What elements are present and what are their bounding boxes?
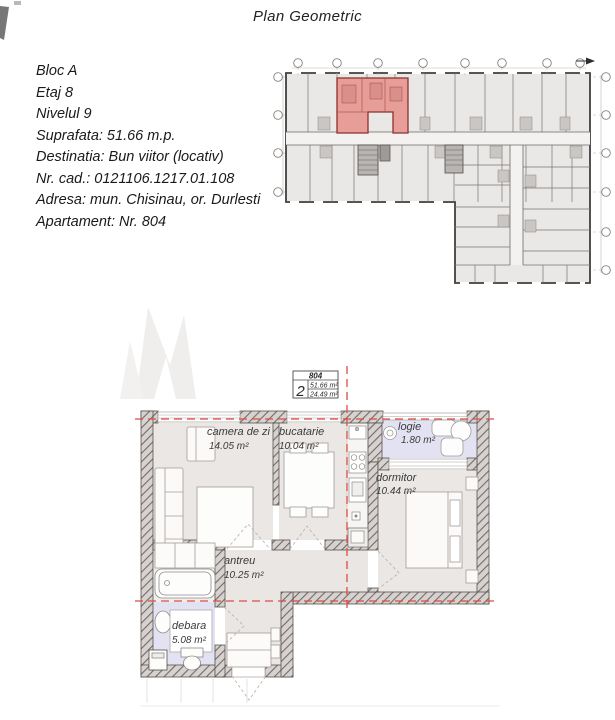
label-logie: logie — [398, 421, 421, 433]
label-dormitor: dormitor — [376, 472, 418, 484]
page-title: Plan Geometric — [0, 8, 615, 25]
area-bucatarie: 10.04 m² — [279, 441, 319, 452]
info-line-suprafata: Suprafata: 51.66 m.p. — [36, 126, 260, 148]
apartment-detail-plan: 804 2 51.66 m² 24.49 m² camera de zi 14.… — [130, 360, 502, 712]
info-line-etaj: Etaj 8 — [36, 83, 260, 105]
apartment-summary-box: 804 2 51.66 m² 24.49 m² — [293, 371, 338, 400]
property-info: Bloc A Etaj 8 Nivelul 9 Suprafata: 51.66… — [36, 61, 260, 233]
area-debara: 5.08 m² — [172, 635, 207, 646]
building-overview-plan — [270, 55, 615, 290]
info-line-adresa: Adresa: mun. Chisinau, or. Durlesti — [36, 190, 260, 212]
area-antreu: 10.25 m² — [224, 570, 264, 581]
info-line-bloc: Bloc A — [36, 61, 260, 83]
summary-room-count: 2 — [295, 383, 305, 400]
label-bucatarie: bucatarie — [279, 426, 324, 438]
construction-guides — [140, 679, 500, 706]
area-dormitor: 10.44 m² — [376, 486, 416, 497]
summary-total-area: 51.66 m² — [310, 382, 338, 389]
label-antreu: antreu — [224, 555, 255, 567]
info-line-destinatia: Destinatia: Bun viitor (locativ) — [36, 147, 260, 169]
building-outline — [286, 73, 590, 283]
furniture-bucatarie — [284, 443, 334, 517]
label-camera-de-zi: camera de zi — [207, 426, 271, 438]
plan-geometric-page: Plan Geometric Bloc A Etaj 8 Nivelul 9 S… — [0, 0, 615, 720]
summary-apartment-number: 804 — [309, 371, 323, 380]
info-line-apartament: Apartament: Nr. 804 — [36, 212, 260, 234]
area-logie: 1.80 m² — [401, 435, 436, 446]
label-debara: debara — [172, 620, 206, 632]
info-line-nr-cadastral: Nr. cad.: 0121106.1217.01.108 — [36, 169, 260, 191]
entrance-door-swing — [232, 676, 266, 700]
info-line-nivel: Nivelul 9 — [36, 104, 260, 126]
summary-living-area: 24.49 m² — [309, 391, 338, 398]
area-camera-de-zi: 14.05 m² — [209, 441, 249, 452]
